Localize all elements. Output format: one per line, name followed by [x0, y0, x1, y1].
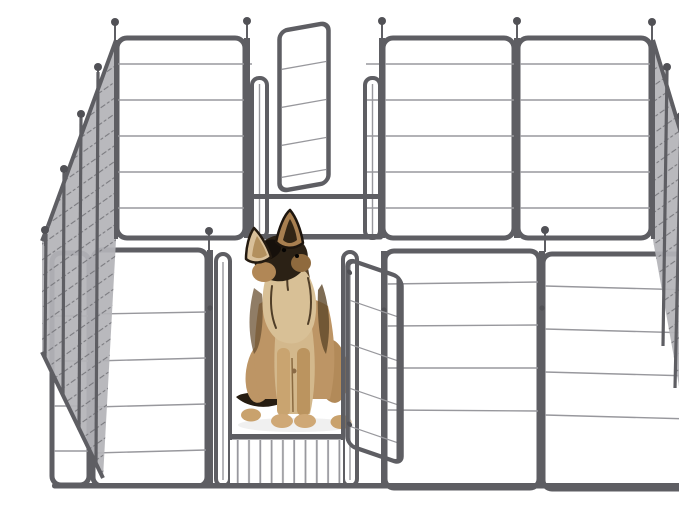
door-stile: [397, 276, 402, 463]
back-wall: [111, 17, 656, 240]
front-bottom-rail: [52, 483, 679, 489]
front-wall-wires: [54, 282, 679, 453]
dog-cheek-right: [291, 254, 311, 272]
dog-front-leg-right: [297, 348, 310, 416]
ball-finial: [243, 17, 251, 25]
ball-finial: [77, 110, 85, 118]
ball-finial: [648, 18, 656, 26]
ball-finial: [378, 17, 386, 25]
dog-cheek-left: [252, 262, 276, 282]
german-shepherd-puppy: [236, 210, 354, 432]
connector-bolt: [207, 305, 212, 310]
dog-front-leg-left: [277, 348, 290, 416]
front-panel: [385, 251, 539, 488]
back-gate-panel: [249, 78, 383, 240]
gate-threshold-bar: [252, 194, 380, 199]
ball-finial: [60, 165, 68, 173]
gate-lower-bars: [230, 440, 343, 484]
ball-finial: [94, 63, 102, 71]
playpen-scene: Product photo: a German Shepherd puppy s…: [40, 16, 679, 495]
panel-post: [514, 38, 520, 238]
ball-finial: [541, 226, 549, 234]
connector-bolt: [539, 305, 544, 310]
ball-finial: [111, 18, 119, 26]
dog-eye-right: [295, 254, 299, 258]
dog-front-paw-right: [294, 414, 316, 428]
dog-hind-paw-left: [241, 409, 261, 422]
product-photo: Product photo: a German Shepherd puppy s…: [40, 16, 679, 495]
back-gate-door-open: [280, 23, 329, 192]
panel-post: [381, 251, 387, 488]
panel-post: [539, 251, 545, 488]
panel-post: [207, 250, 213, 486]
ball-finial: [663, 63, 671, 71]
dog-front-paw-left: [271, 414, 293, 428]
right-side-wall: [653, 40, 679, 487]
ball-finial: [513, 17, 521, 25]
gate-threshold-bar: [228, 434, 345, 440]
ball-finial: [205, 227, 213, 235]
ball-finial: [41, 226, 49, 234]
